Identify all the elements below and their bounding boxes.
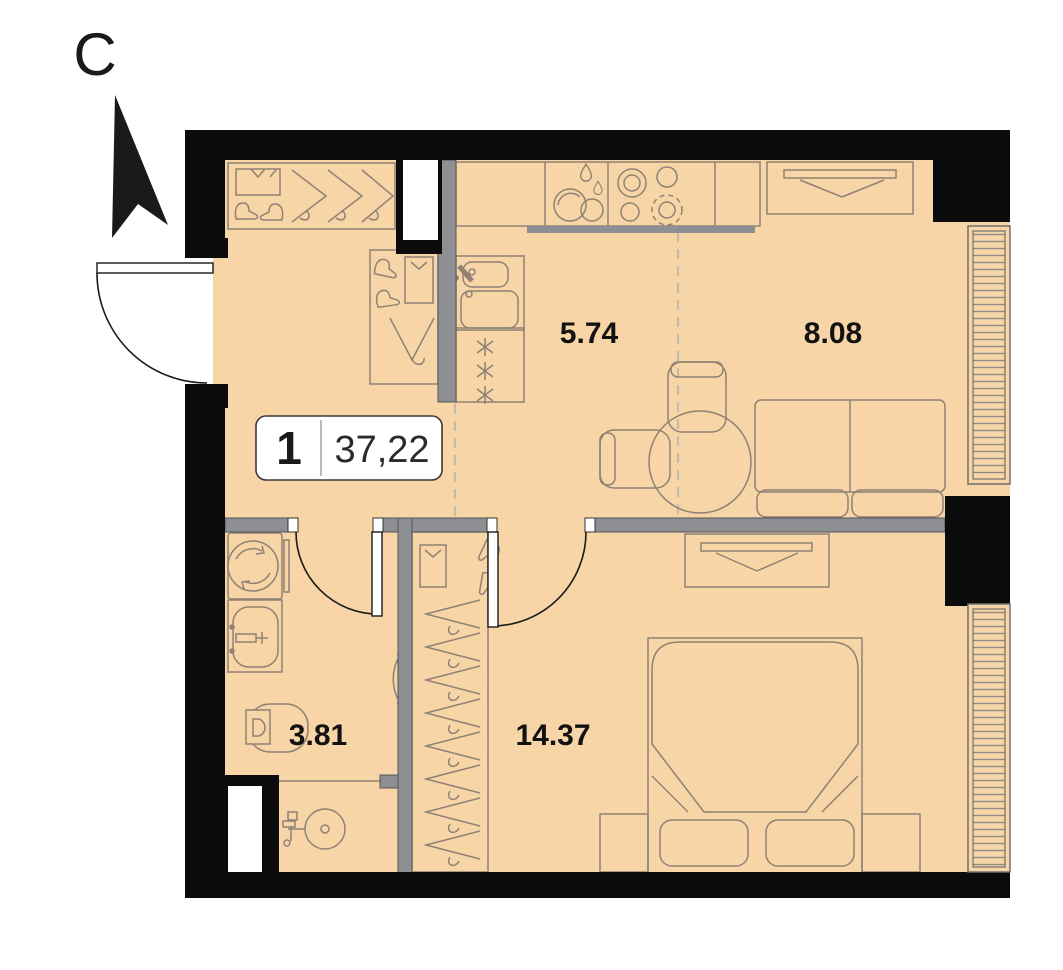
north-arrow-icon: С: [73, 21, 168, 238]
unit-total-area: 37,22: [334, 429, 429, 471]
floor-plan-drawing: 5.74 8.08 3.81 14.37 1 37,22 С: [0, 0, 1063, 970]
bedroom-area-label: 14.37: [515, 719, 590, 752]
bathroom-area-label: 3.81: [289, 719, 347, 752]
living-room-area-label: 8.08: [804, 317, 862, 350]
floor-plan-page: 5.74 8.08 3.81 14.37 1 37,22 С: [0, 0, 1063, 970]
unit-badge: 1 37,22: [256, 416, 442, 480]
entrance-opening-exterior: [96, 258, 213, 384]
kitchen-area-label: 5.74: [560, 317, 619, 350]
unit-rooms-count: 1: [276, 422, 302, 474]
apartment-floor: [185, 130, 1010, 898]
north-label: С: [73, 21, 116, 88]
